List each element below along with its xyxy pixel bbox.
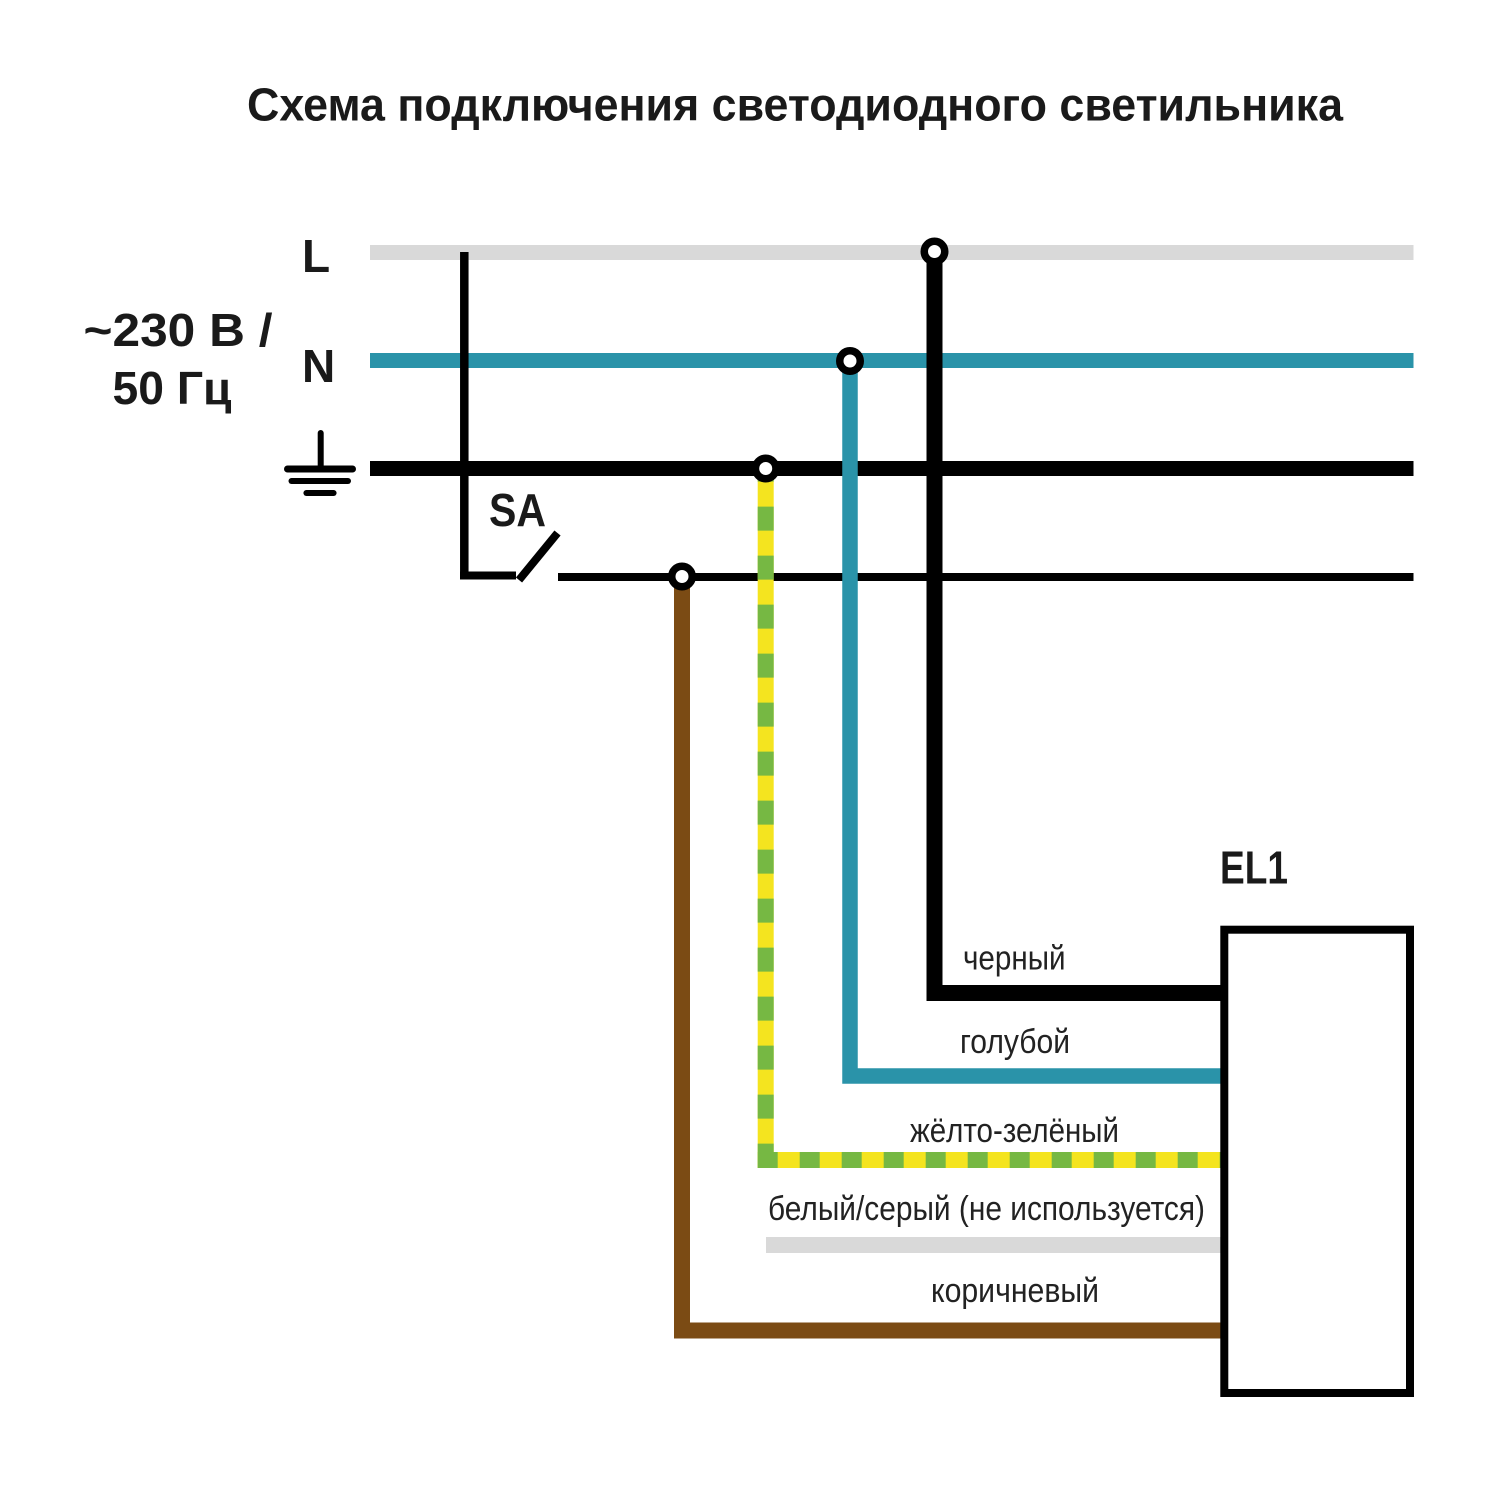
svg-text:голубой: голубой: [960, 1023, 1070, 1061]
svg-text:Схема подключения светодиодног: Схема подключения светодиодного светильн…: [247, 79, 1343, 131]
svg-text:жёлто-зелёный: жёлто-зелёный: [910, 1112, 1119, 1150]
svg-text:белый/серый (не используется): белый/серый (не используется): [768, 1190, 1205, 1228]
svg-text:50 Гц: 50 Гц: [113, 362, 232, 414]
svg-text:~230 В /: ~230 В /: [84, 304, 273, 356]
svg-text:SA: SA: [489, 484, 546, 536]
svg-text:N: N: [302, 340, 335, 392]
svg-text:черный: черный: [963, 940, 1066, 978]
svg-text:L: L: [302, 230, 330, 282]
svg-text:коричневый: коричневый: [931, 1272, 1099, 1310]
svg-text:EL1: EL1: [1220, 842, 1288, 894]
